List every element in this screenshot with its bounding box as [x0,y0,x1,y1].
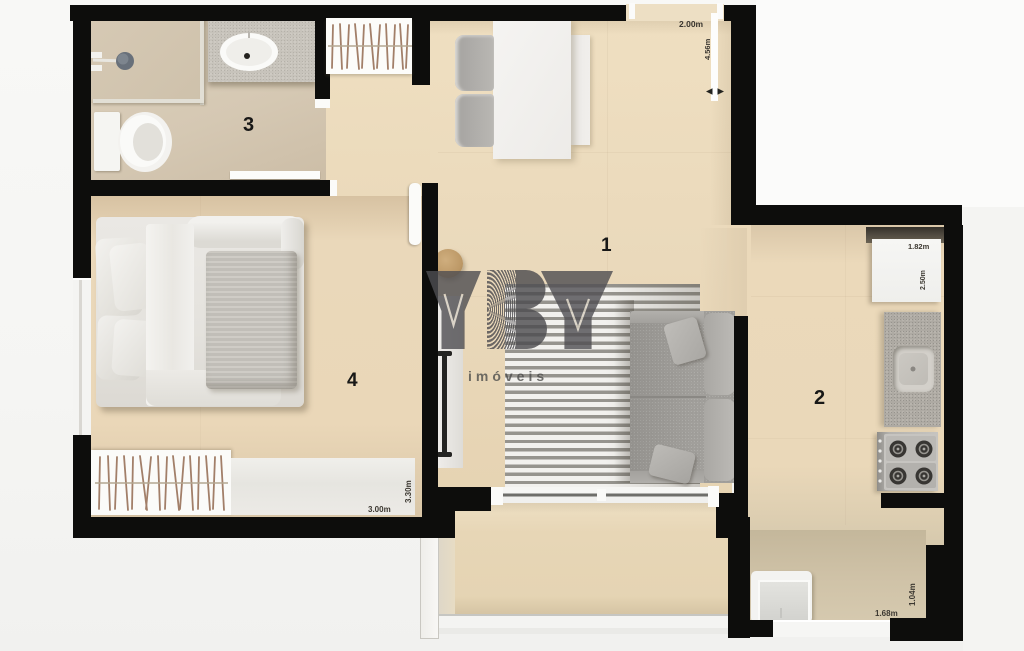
svg-text:imóveis: imóveis [468,368,548,384]
svg-text:4.56m: 4.56m [703,38,712,60]
svg-text:2.50m: 2.50m [920,270,927,290]
svg-text:3.30m: 3.30m [404,480,413,503]
svg-text:1.82m: 1.82m [908,242,930,251]
svg-text:2: 2 [814,387,825,409]
svg-text:3.00m: 3.00m [368,505,391,514]
svg-text:3: 3 [243,114,254,136]
svg-text:1.68m: 1.68m [875,609,898,618]
svg-text:1.04m: 1.04m [908,583,917,606]
svg-text:4: 4 [347,370,358,391]
svg-text:2.00m: 2.00m [679,19,704,29]
svg-text:1: 1 [601,235,612,256]
